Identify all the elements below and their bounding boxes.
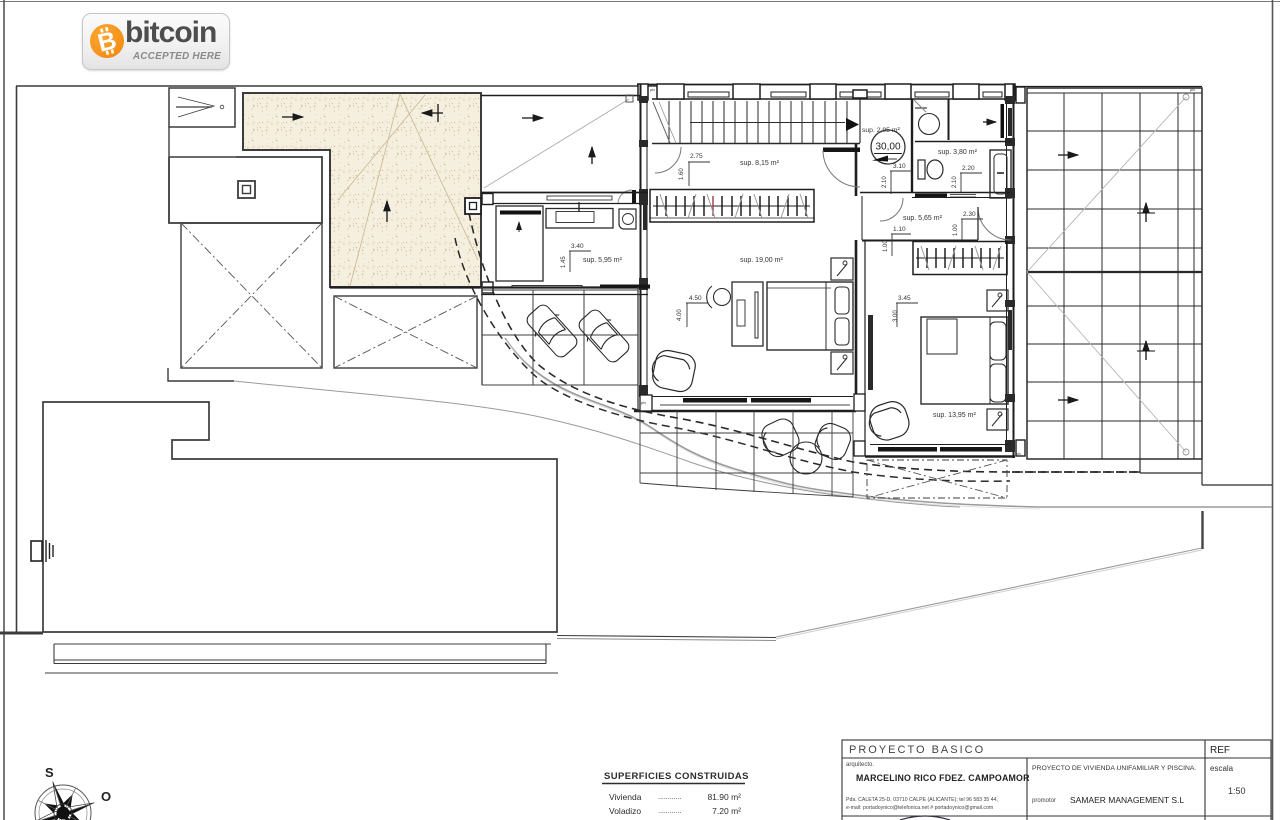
svg-text:sup. 2,95 m²: sup. 2,95 m² — [862, 127, 901, 134]
svg-text:3.45: 3.45 — [898, 295, 911, 302]
svg-text:sup. 3,80 m²: sup. 3,80 m² — [938, 149, 978, 156]
svg-text:MARCELINO RICO FDEZ. CAMPOAMOR: MARCELINO RICO FDEZ. CAMPOAMOR — [856, 773, 1030, 783]
svg-text:plv: plv — [1190, 87, 1195, 92]
svg-text:O: O — [101, 789, 111, 804]
svg-text:arquitecto.: arquitecto. — [846, 762, 874, 768]
svg-text:plv: plv — [650, 87, 655, 92]
svg-text:1.00: 1.00 — [953, 224, 959, 236]
svg-text:2.20: 2.20 — [962, 165, 975, 172]
svg-text:sup. 13,95 m²: sup. 13,95 m² — [933, 412, 976, 419]
svg-text:Pda. CALETA 25-D, 03710 CALPE: Pda. CALETA 25-D, 03710 CALPE (ALICANTE)… — [846, 797, 998, 803]
svg-text:SAMAER MANAGEMENT S.L: SAMAER MANAGEMENT S.L — [1070, 795, 1184, 805]
svg-text:............: ............ — [658, 808, 681, 815]
svg-text:3.40: 3.40 — [571, 243, 584, 250]
svg-text:plv: plv — [641, 400, 646, 405]
svg-text:escala: escala — [1210, 764, 1234, 773]
svg-text:............: ............ — [658, 794, 681, 801]
svg-text:PROYECTO DE VIVIENDA UNIFAMILI: PROYECTO DE VIVIENDA UNIFAMILIAR Y PISCI… — [1032, 765, 1196, 772]
svg-text:REF: REF — [1210, 745, 1230, 756]
svg-text:sup. 19,00 m²: sup. 19,00 m² — [740, 257, 783, 264]
svg-text:1.60: 1.60 — [679, 168, 685, 180]
svg-text:2.10: 2.10 — [882, 176, 888, 188]
svg-text:SUPERFICIES CONSTRUIDAS: SUPERFICIES CONSTRUIDAS — [604, 771, 749, 782]
svg-text:3.10: 3.10 — [893, 163, 906, 170]
svg-text:2.30: 2.30 — [963, 211, 976, 218]
svg-text:1:50: 1:50 — [1228, 786, 1246, 796]
svg-text:2.75: 2.75 — [690, 153, 703, 160]
svg-text:1.45: 1.45 — [561, 256, 567, 268]
svg-text:7.20 m²: 7.20 m² — [712, 806, 741, 816]
svg-text:S: S — [45, 765, 54, 780]
svg-text:1.00: 1.00 — [883, 240, 889, 252]
svg-text:plv: plv — [1016, 451, 1021, 456]
svg-text:1.10: 1.10 — [893, 226, 906, 233]
svg-text:sup. 5,65 m²: sup. 5,65 m² — [903, 215, 943, 222]
svg-text:3.00: 3.00 — [893, 310, 899, 322]
svg-text:2.10: 2.10 — [952, 176, 958, 188]
svg-text:e-mail: portadoynico@telefonic: e-mail: portadoynico@telefonica.net # po… — [846, 805, 993, 811]
svg-text:sup. 8,15 m²: sup. 8,15 m² — [740, 160, 780, 167]
svg-text:4.50: 4.50 — [689, 295, 702, 302]
svg-text:Voladizo: Voladizo — [609, 806, 641, 816]
svg-text:4.00: 4.00 — [677, 309, 683, 321]
svg-text:81.90 m²: 81.90 m² — [707, 792, 741, 802]
svg-text:sup. 5,95 m²: sup. 5,95 m² — [583, 257, 623, 264]
svg-text:PROYECTO BASICO: PROYECTO BASICO — [849, 744, 985, 756]
svg-text:Vivienda: Vivienda — [609, 792, 642, 802]
svg-text:30,00: 30,00 — [875, 142, 900, 153]
svg-text:promotor: promotor — [1032, 798, 1056, 804]
